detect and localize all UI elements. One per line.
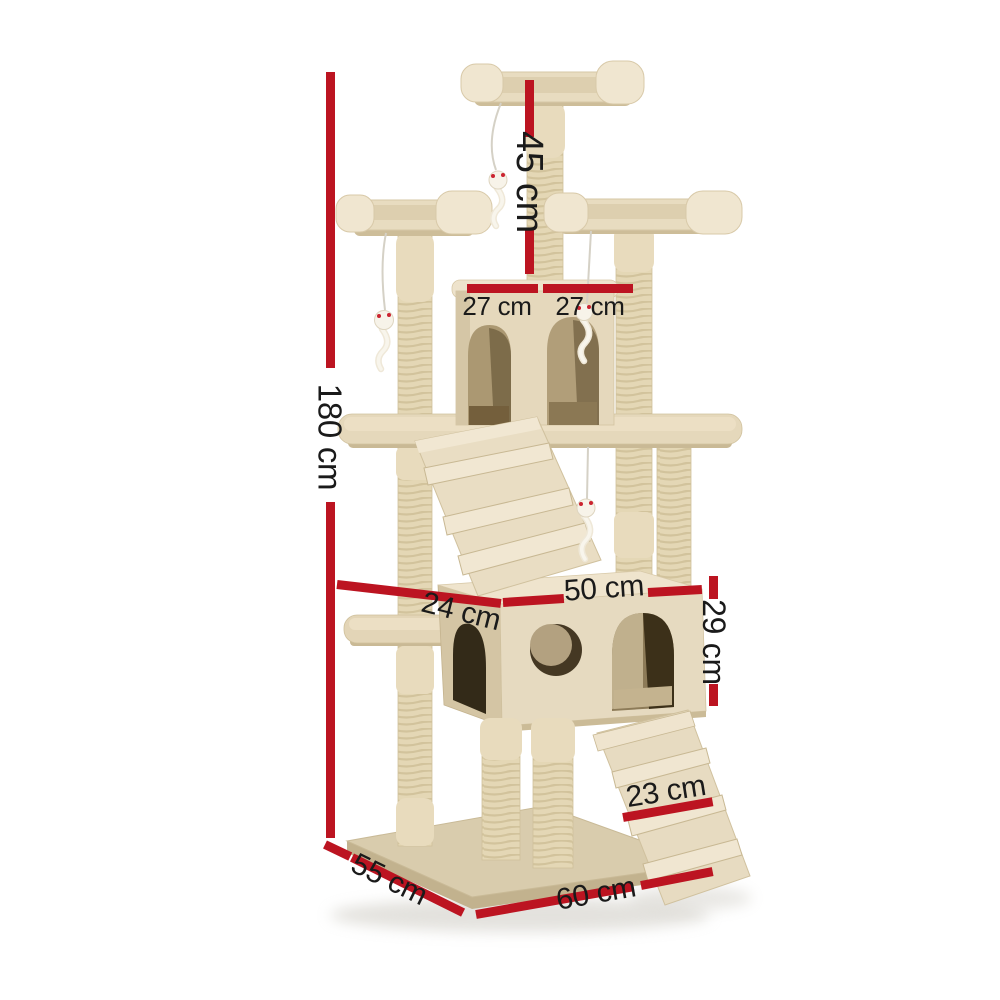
cat-tree-illustration [0, 0, 1000, 1000]
dimension-line-total-height-lower [326, 502, 335, 838]
top-platform [461, 61, 644, 106]
dimension-line-house-height-lower [709, 684, 718, 706]
scratching-post [614, 226, 691, 588]
dimension-label-house-height: 29 cm [698, 599, 730, 685]
dimension-label-condo-width-left: 27 cm [462, 293, 531, 319]
scratching-post [396, 232, 434, 846]
dimension-line-total-height-upper [326, 72, 335, 368]
dimension-label-condo-width-right: 27 cm [555, 293, 624, 319]
dimension-label-total-height: 180 cm [314, 384, 347, 490]
product-dimension-image: 180 cm 45 cm 27 cm 27 cm 24 cm 50 cm 29 … [0, 0, 1000, 1000]
dimension-label-top-post-height: 45 cm [510, 131, 548, 233]
dimension-line-top-post-lower [525, 228, 534, 274]
perch-platform [544, 191, 742, 234]
dimension-line-house-height-upper [709, 576, 718, 599]
dimension-line-top-post-upper [525, 80, 534, 137]
dimension-label-house-width: 50 cm [563, 571, 645, 607]
hanging-mouse-toy [375, 233, 394, 369]
perch-platform [336, 191, 492, 236]
